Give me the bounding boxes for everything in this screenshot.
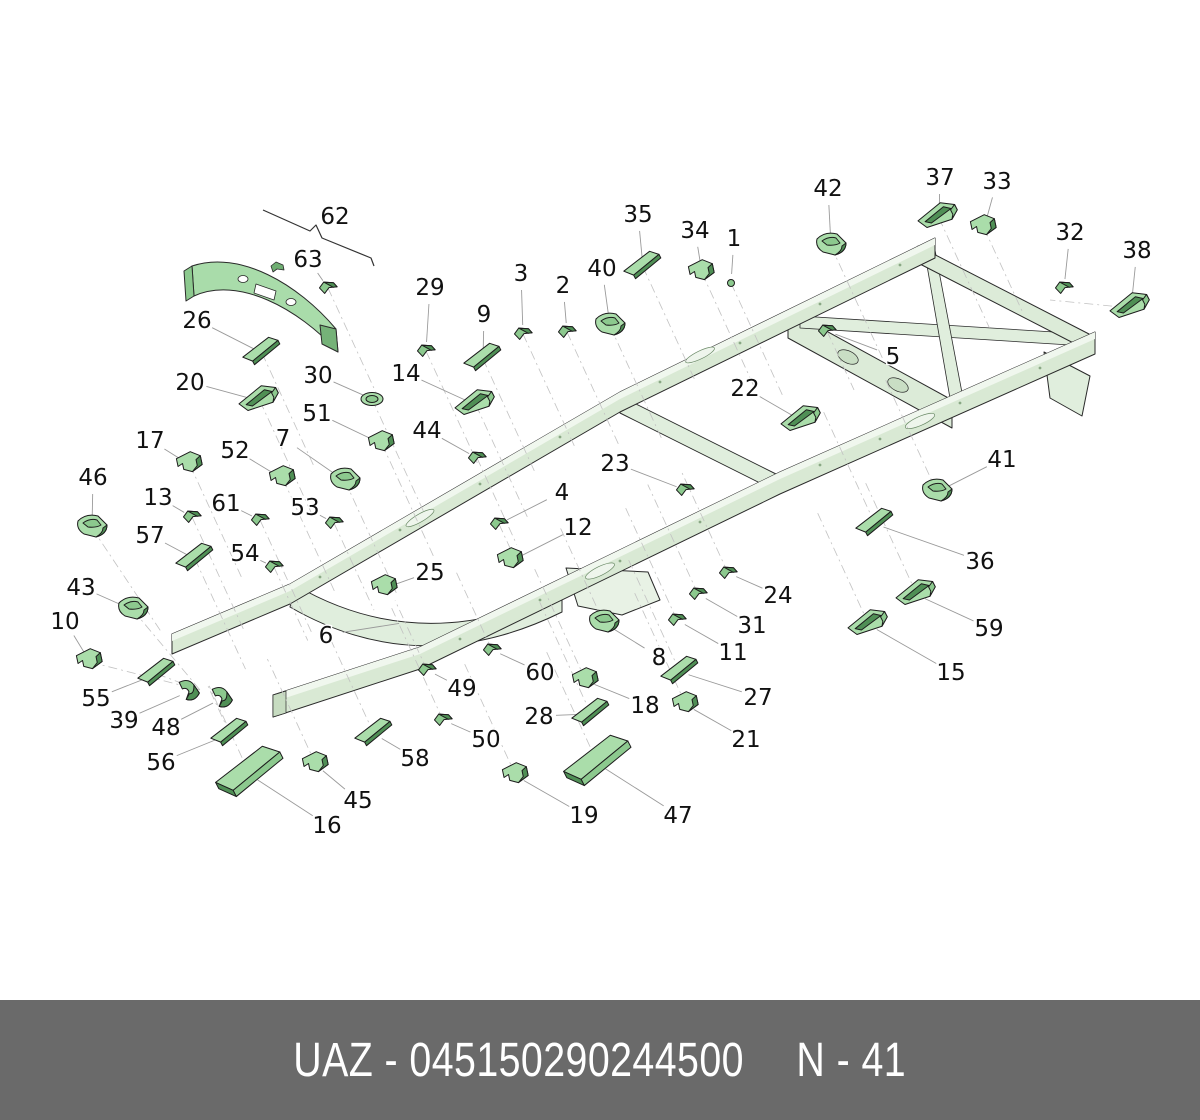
leader-line xyxy=(334,382,364,395)
callout-52[interactable]: 52 xyxy=(220,438,249,464)
part-glyph-17 xyxy=(176,450,204,475)
callout-55[interactable]: 55 xyxy=(81,686,110,712)
callout-3[interactable]: 3 xyxy=(514,261,529,287)
callout-43[interactable]: 43 xyxy=(66,575,95,601)
leader-line xyxy=(829,205,831,237)
leader-line xyxy=(877,629,936,663)
callout-12[interactable]: 12 xyxy=(563,515,592,541)
part-glyph-35 xyxy=(621,248,664,282)
callout-2[interactable]: 2 xyxy=(556,273,571,299)
part-glyph-55 xyxy=(135,655,178,689)
part-glyph-13 xyxy=(182,507,202,523)
leader-line xyxy=(694,709,731,730)
part-glyph-9 xyxy=(461,340,504,374)
callout-8[interactable]: 8 xyxy=(652,645,667,671)
leader-line xyxy=(736,577,762,589)
callout-4[interactable]: 4 xyxy=(555,480,570,506)
callout-32[interactable]: 32 xyxy=(1055,220,1084,246)
callout-61[interactable]: 61 xyxy=(211,491,240,517)
leader-line xyxy=(640,231,643,258)
callout-53[interactable]: 53 xyxy=(290,495,319,521)
callout-42[interactable]: 42 xyxy=(813,176,842,202)
leader-line xyxy=(442,438,469,453)
leader-line xyxy=(427,304,429,342)
footer-text: UAZ - 045150290244500 N - 41 xyxy=(294,1033,907,1088)
leader-line xyxy=(500,654,524,665)
leader-line xyxy=(732,255,733,274)
callout-59[interactable]: 59 xyxy=(974,616,1003,642)
callout-38[interactable]: 38 xyxy=(1122,238,1151,264)
callout-44[interactable]: 44 xyxy=(412,418,441,444)
part-glyph-face xyxy=(366,396,378,403)
part-glyph-26 xyxy=(240,334,283,368)
part-glyph-54 xyxy=(264,557,284,573)
bumper-crossmember-left-flange xyxy=(184,266,194,301)
part-glyph-63 xyxy=(318,278,338,294)
part-glyph-42 xyxy=(817,233,846,255)
callout-25[interactable]: 25 xyxy=(415,560,444,586)
callout-40[interactable]: 40 xyxy=(587,256,616,282)
callout-15[interactable]: 15 xyxy=(936,660,965,686)
callout-27[interactable]: 27 xyxy=(743,685,772,711)
part-glyph-57 xyxy=(173,540,216,574)
callout-28[interactable]: 28 xyxy=(524,704,553,730)
callout-45[interactable]: 45 xyxy=(343,788,372,814)
part-glyph-39 xyxy=(179,678,200,701)
clip-63-secondary xyxy=(271,262,284,272)
part-glyph-20 xyxy=(236,380,281,416)
callout-5[interactable]: 5 xyxy=(886,344,901,370)
part-glyph-23 xyxy=(675,480,695,496)
chassis-frame-exploded-diagram: 1234567891011121314151617181920212223242… xyxy=(0,0,1200,1000)
assembly-axes xyxy=(90,218,1131,776)
callout-51[interactable]: 51 xyxy=(302,401,331,427)
part-glyph-43 xyxy=(119,597,148,619)
mid-crossmember xyxy=(620,396,780,493)
leader-line xyxy=(181,703,213,719)
footer-bar: UAZ - 045150290244500 N - 41 xyxy=(0,1000,1200,1120)
leader-line xyxy=(332,420,374,440)
part-glyph-37 xyxy=(915,197,960,233)
leader-line xyxy=(685,624,718,643)
part-glyph-59 xyxy=(893,574,938,610)
callout-56[interactable]: 56 xyxy=(146,750,175,776)
part-glyph-25 xyxy=(371,573,399,598)
callout-22[interactable]: 22 xyxy=(730,376,759,402)
part-glyph-29 xyxy=(416,341,436,357)
part-glyph-12 xyxy=(497,546,525,571)
leader-line xyxy=(689,675,742,692)
assembly-axis-line xyxy=(865,481,917,595)
part-glyph-61 xyxy=(250,510,270,526)
callout-24[interactable]: 24 xyxy=(763,583,792,609)
leader-line xyxy=(451,724,470,732)
callout-60[interactable]: 60 xyxy=(525,660,554,686)
assembly-axis-line xyxy=(372,399,424,513)
leader-line xyxy=(612,628,645,648)
near-side-rail-top-face xyxy=(273,332,1095,702)
leader-line xyxy=(524,780,569,806)
part-glyph-2 xyxy=(557,322,577,338)
callout-10[interactable]: 10 xyxy=(50,609,79,635)
callout-37[interactable]: 37 xyxy=(925,165,954,191)
part-glyph-15 xyxy=(845,604,890,640)
callout-9[interactable]: 9 xyxy=(477,302,492,328)
callout-23[interactable]: 23 xyxy=(600,451,629,477)
leader-line xyxy=(594,684,629,698)
leader-line xyxy=(382,739,401,750)
part-glyph-18 xyxy=(572,666,600,691)
part-glyph-14 xyxy=(452,384,497,420)
callout-39[interactable]: 39 xyxy=(109,708,138,734)
part-glyph-33 xyxy=(970,213,998,238)
part-glyph-22 xyxy=(778,400,823,436)
callout-47[interactable]: 47 xyxy=(663,803,692,829)
footer-catalog-code: UAZ - 045150290244500 xyxy=(294,1033,745,1088)
part-glyph-45 xyxy=(302,750,330,775)
callout-7[interactable]: 7 xyxy=(276,426,291,452)
part-glyph-4 xyxy=(489,514,509,530)
leader-line xyxy=(604,285,608,317)
leader-line xyxy=(421,380,467,401)
callout-14[interactable]: 14 xyxy=(391,361,420,387)
leader-line xyxy=(297,448,338,476)
part-glyph-50 xyxy=(433,710,453,726)
part-glyph-1 xyxy=(728,280,735,287)
leader-line xyxy=(173,506,185,513)
callout-36[interactable]: 36 xyxy=(965,549,994,575)
part-glyph-34 xyxy=(688,258,716,283)
callout-62[interactable]: 62 xyxy=(320,204,349,230)
leader-line xyxy=(1065,249,1068,279)
part-glyph-31 xyxy=(688,584,708,600)
part-glyph-32 xyxy=(1054,278,1074,294)
part-glyph-41 xyxy=(923,479,952,501)
part-glyph-46 xyxy=(78,515,107,537)
callout-13[interactable]: 13 xyxy=(143,485,172,511)
callout-31[interactable]: 31 xyxy=(737,613,766,639)
leader-line xyxy=(631,469,677,487)
part-glyph-21 xyxy=(672,690,700,715)
callout-34[interactable]: 34 xyxy=(680,218,709,244)
callout-58[interactable]: 58 xyxy=(400,746,429,772)
part-glyph-face xyxy=(728,280,735,287)
leader-line xyxy=(522,290,523,325)
callout-1[interactable]: 1 xyxy=(727,226,742,252)
leader-line xyxy=(435,674,447,680)
leader-line xyxy=(206,386,251,398)
leader-line xyxy=(883,527,963,555)
leader-line xyxy=(260,560,266,563)
part-glyph-40 xyxy=(596,313,625,335)
callout-19[interactable]: 19 xyxy=(569,803,598,829)
part-glyph-28 xyxy=(569,695,612,729)
callout-16[interactable]: 16 xyxy=(312,813,341,839)
part-glyph-36 xyxy=(853,505,896,539)
leader-line xyxy=(258,780,313,816)
callout-46[interactable]: 46 xyxy=(78,465,107,491)
leader-line xyxy=(564,302,566,323)
callout-21[interactable]: 21 xyxy=(731,727,760,753)
callout-17[interactable]: 17 xyxy=(135,428,164,454)
leader-line xyxy=(519,535,563,557)
assembly-axis-line xyxy=(192,517,244,631)
part-glyph-60 xyxy=(482,640,502,656)
callout-35[interactable]: 35 xyxy=(623,202,652,228)
callout-48[interactable]: 48 xyxy=(151,715,180,741)
assembly-axis-line xyxy=(499,524,510,548)
part-glyph-24 xyxy=(718,563,738,579)
leader-line xyxy=(945,467,987,488)
bumper-crossmember-end-flange xyxy=(320,325,338,352)
part-glyph-11 xyxy=(667,610,687,626)
leader-line xyxy=(140,696,180,714)
parts-catalog-page: 1234567891011121314151617181920212223242… xyxy=(0,0,1200,1120)
callout-20[interactable]: 20 xyxy=(175,370,204,396)
leader-line xyxy=(165,543,187,555)
leader-line xyxy=(606,769,664,806)
leader-line xyxy=(241,511,252,516)
callout-50[interactable]: 50 xyxy=(471,727,500,753)
callout-29[interactable]: 29 xyxy=(415,275,444,301)
part-glyph-53 xyxy=(324,513,344,529)
leader-line xyxy=(323,771,345,789)
leader-line xyxy=(318,273,323,281)
part-glyph-52 xyxy=(269,464,297,489)
part-glyph-30 xyxy=(361,393,383,406)
callout-63[interactable]: 63 xyxy=(293,247,322,273)
callout-49[interactable]: 49 xyxy=(447,676,476,702)
leader-line xyxy=(706,598,737,616)
part-glyph-10 xyxy=(76,647,104,672)
part-glyph-56 xyxy=(208,715,251,749)
bumper-crossmember-part xyxy=(192,262,338,352)
part-glyph-58 xyxy=(352,715,395,749)
part-glyph-51 xyxy=(368,429,396,454)
callout-57[interactable]: 57 xyxy=(135,523,164,549)
callout-6[interactable]: 6 xyxy=(319,623,334,649)
callout-30[interactable]: 30 xyxy=(303,363,332,389)
leader-line xyxy=(760,397,794,417)
callout-18[interactable]: 18 xyxy=(630,693,659,719)
part-glyph-3 xyxy=(513,324,533,340)
footer-page-number: N - 41 xyxy=(797,1033,907,1088)
callout-33[interactable]: 33 xyxy=(982,169,1011,195)
leader-line xyxy=(212,328,254,349)
callout-26[interactable]: 26 xyxy=(182,308,211,334)
callout-54[interactable]: 54 xyxy=(230,541,259,567)
callout-11[interactable]: 11 xyxy=(718,640,747,666)
callout-41[interactable]: 41 xyxy=(987,447,1016,473)
leader-line xyxy=(925,599,973,621)
leader-line xyxy=(320,515,326,518)
part-glyph-7 xyxy=(331,468,360,490)
part-glyph-38 xyxy=(1107,287,1152,323)
part-glyph-48 xyxy=(212,685,233,708)
